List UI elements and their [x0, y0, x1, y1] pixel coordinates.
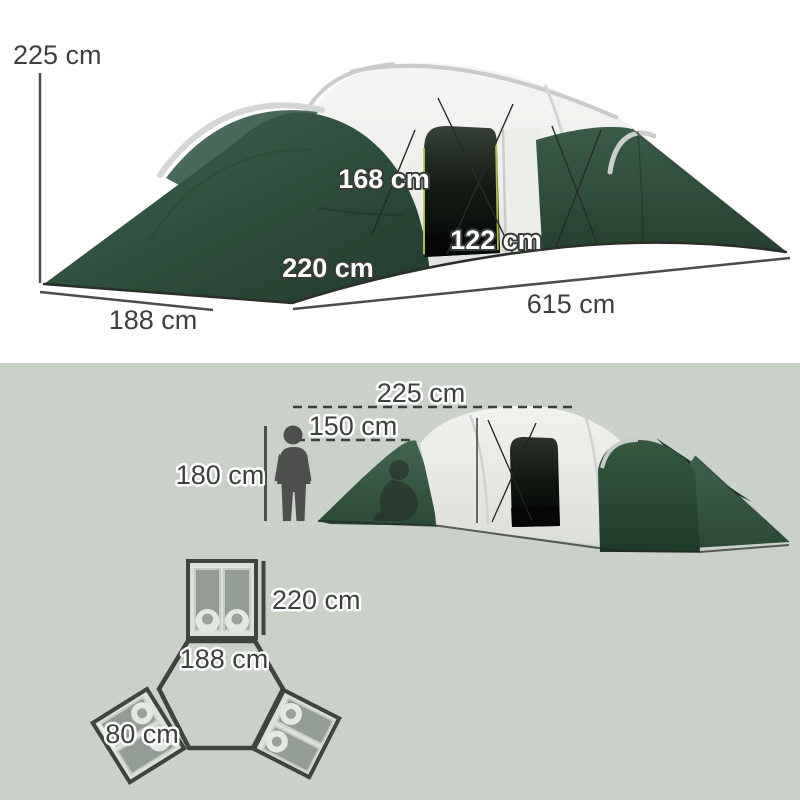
door-height-label: 122 cm — [450, 225, 542, 255]
total-length-label: 615 cm — [527, 289, 616, 319]
side-door-floor — [511, 506, 560, 527]
inner-height-label: 168 cm — [338, 164, 430, 194]
peak-height-label: 225 cm — [377, 378, 466, 408]
side-width-label: 188 cm — [109, 305, 198, 335]
person-height-label: 180 cm — [176, 460, 265, 490]
room-depth-label: 220 cm — [282, 253, 374, 283]
pillow-center — [202, 614, 213, 625]
pillow-center — [232, 614, 243, 625]
sleeping-bag-width-label: 80 cm — [105, 719, 179, 749]
tent-photo-diagram: 225 cm 188 cm 615 cm 168 cm 122 cm 220 c… — [0, 40, 800, 362]
bedroom-width-label: 188 cm — [180, 644, 269, 674]
bedroom-depth-label: 220 cm — [272, 585, 361, 615]
wall-height-label: 150 cm — [309, 411, 398, 441]
tent-height-label: 225 cm — [13, 40, 102, 70]
tent-dimensions-diagram: 225 cm 188 cm 615 cm 168 cm 122 cm 220 c… — [0, 0, 800, 800]
